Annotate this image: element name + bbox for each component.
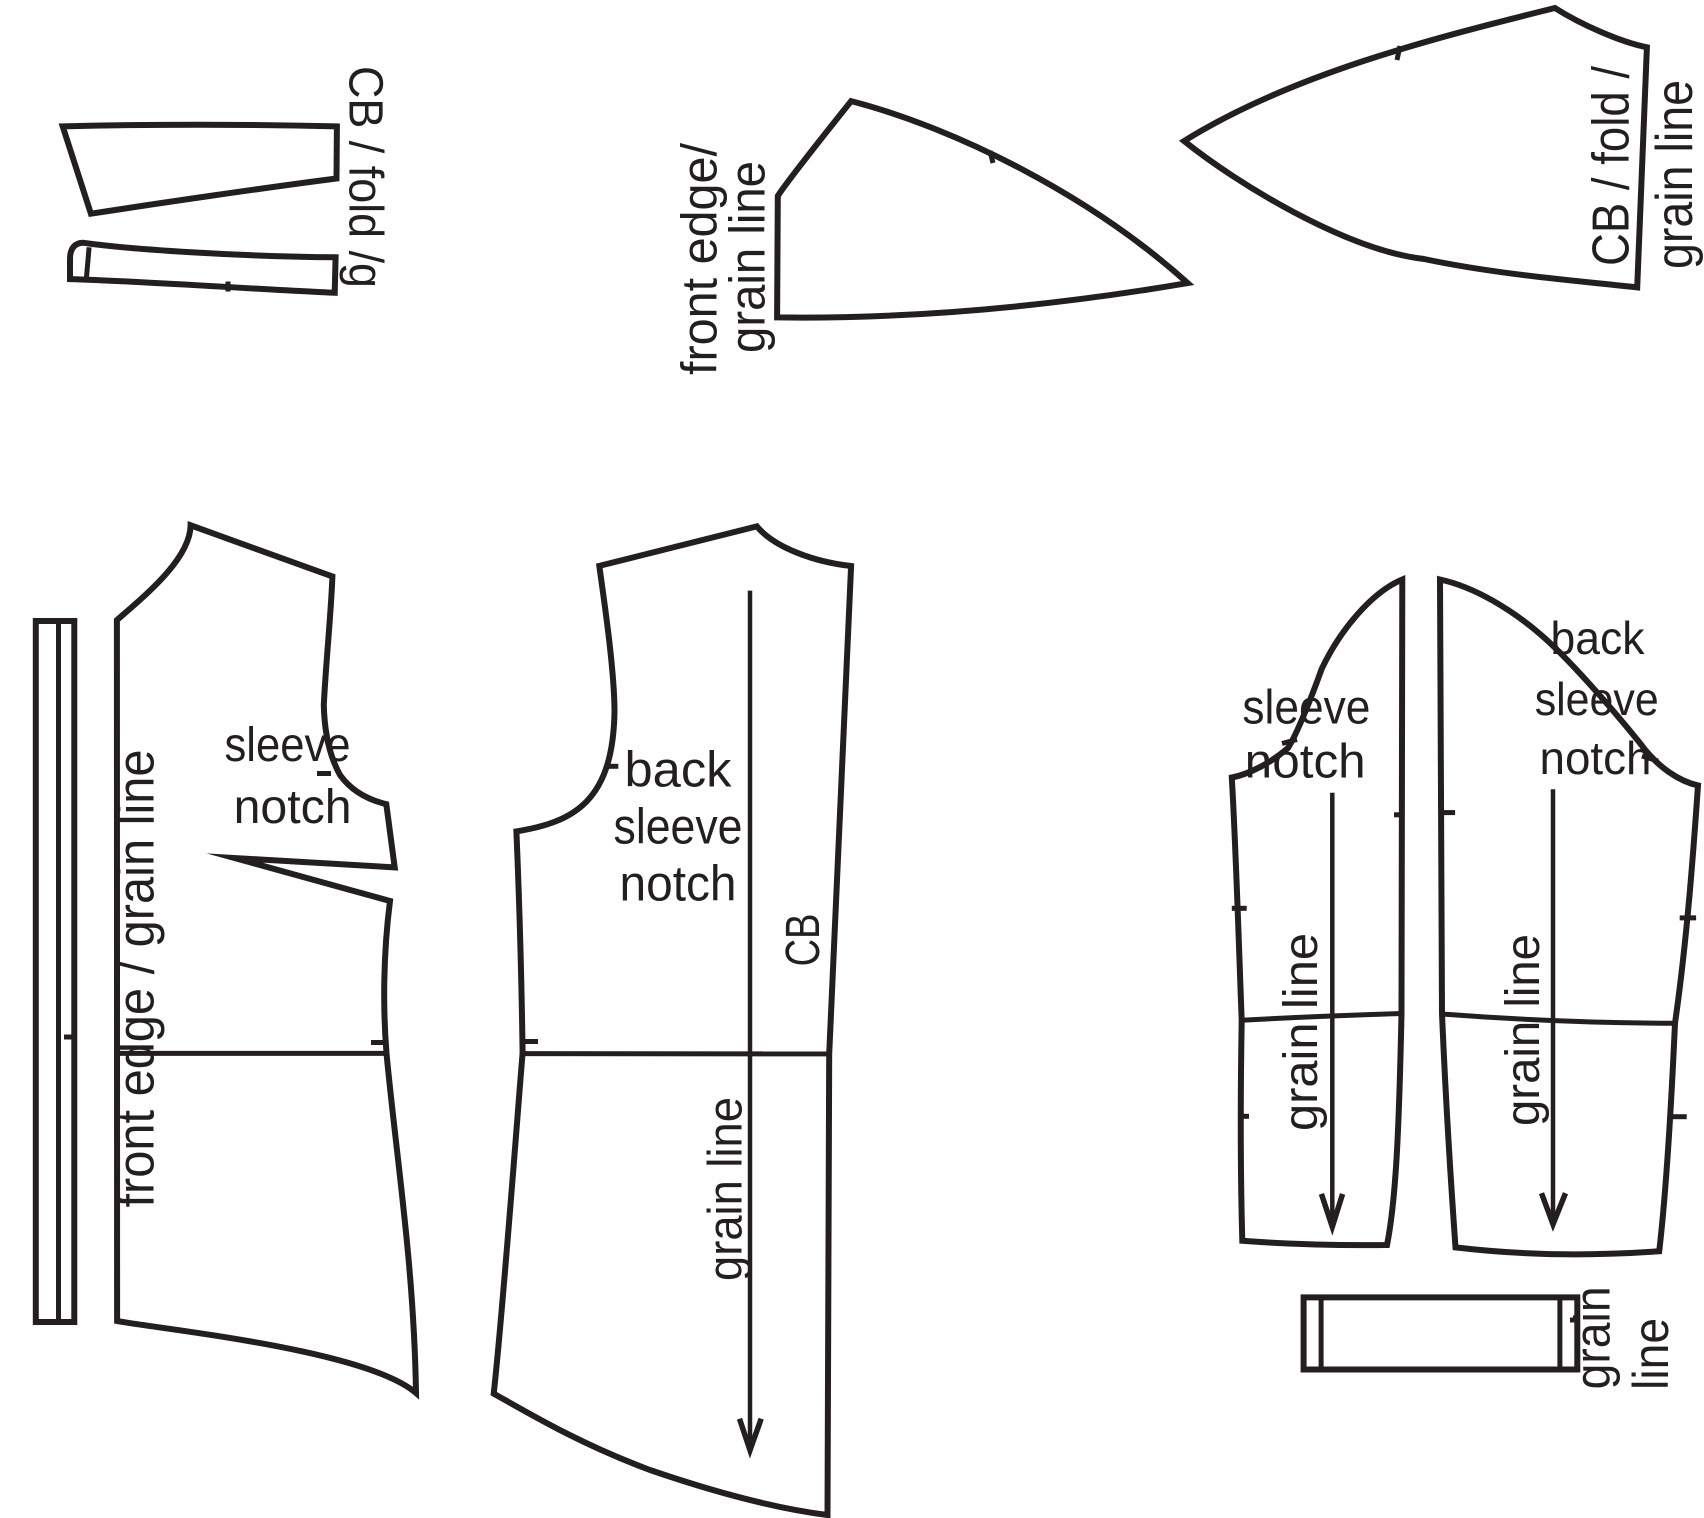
svg-text:back: back [625, 741, 733, 797]
svg-text:notch: notch [620, 856, 737, 912]
svg-text:grain line: grain line [720, 161, 776, 353]
svg-text:notch: notch [1540, 732, 1652, 784]
svg-text:sleeve: sleeve [225, 719, 351, 772]
svg-text:CB / fold /g: CB / fold /g [339, 66, 392, 288]
svg-text:sleeve: sleeve [1242, 682, 1370, 735]
svg-text:CB: CB [777, 914, 830, 967]
svg-text:grain: grain [1565, 1286, 1621, 1389]
svg-text:line: line [1623, 1318, 1679, 1390]
svg-text:grain line: grain line [1497, 934, 1550, 1126]
svg-text:front edge / grain line: front edge / grain line [108, 750, 166, 1208]
svg-text:notch: notch [234, 781, 352, 834]
svg-text:sleeve: sleeve [1535, 673, 1659, 725]
svg-text:back: back [1551, 612, 1646, 664]
svg-text:sleeve: sleeve [614, 799, 743, 855]
svg-text:grain line: grain line [700, 1097, 753, 1281]
svg-text:CB / fold /: CB / fold / [1583, 66, 1641, 266]
svg-text:notch: notch [1245, 736, 1366, 789]
svg-text:grain line: grain line [1646, 80, 1704, 269]
svg-text:grain line: grain line [1275, 933, 1328, 1131]
